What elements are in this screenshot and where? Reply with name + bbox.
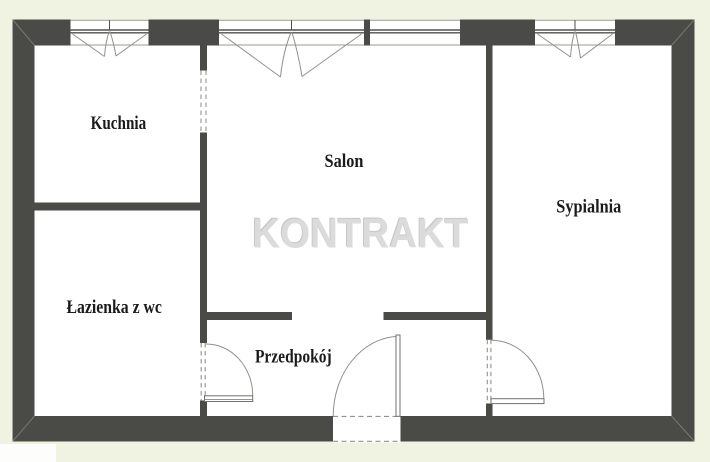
svg-text:KONTRAKT: KONTRAKT	[252, 210, 468, 257]
svg-text:Kuchnia: Kuchnia	[91, 113, 147, 134]
svg-text:Sypialnia: Sypialnia	[556, 197, 621, 218]
svg-text:Łazienka z wc: Łazienka z wc	[66, 297, 162, 318]
svg-text:Salon: Salon	[325, 151, 364, 172]
svg-text:Przedpokój: Przedpokój	[255, 346, 332, 367]
